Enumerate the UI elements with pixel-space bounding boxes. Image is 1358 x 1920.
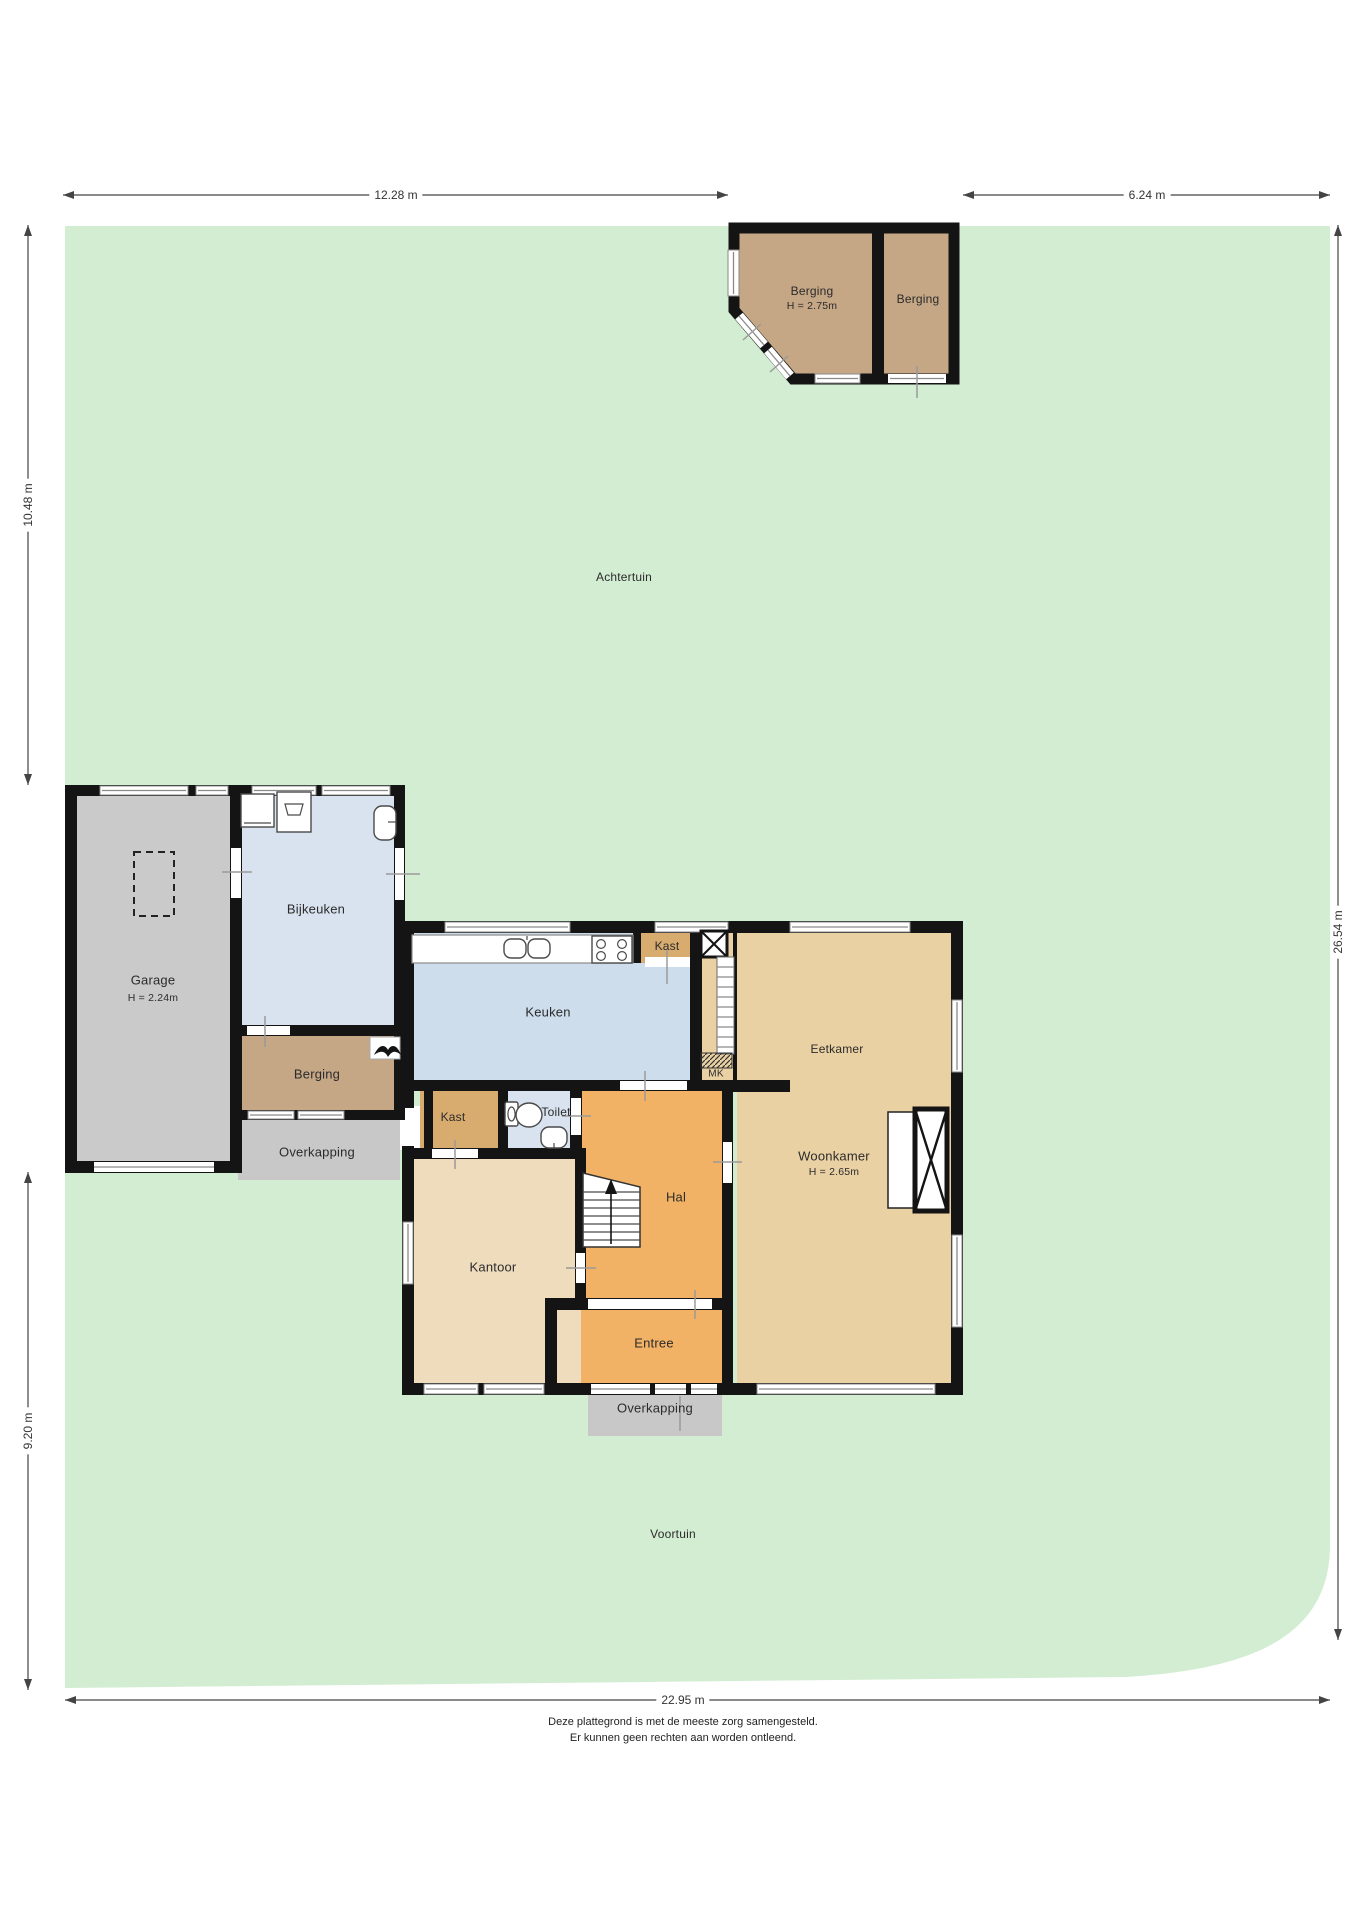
bird-icon: [370, 1037, 401, 1059]
floor-plan-drawing: [0, 0, 1358, 1920]
label-toilet: Toilet: [541, 1105, 570, 1119]
label-entree: Entree: [634, 1336, 674, 1351]
label-woonkamer: Woonkamer: [798, 1149, 870, 1164]
label-berging-shed-right: Berging: [897, 292, 940, 306]
label-hal: Hal: [666, 1190, 686, 1205]
label-keuken: Keuken: [525, 1005, 570, 1020]
meterkast-hatch: [701, 1053, 732, 1068]
dim-label-top-left: 12.28 m: [369, 188, 422, 202]
shaft-x-icon: [701, 931, 727, 957]
label-meterkast: MK: [708, 1069, 723, 1080]
shed-divider-wall: [872, 224, 884, 376]
label-woonkamer-height: H = 2.65m: [809, 1166, 860, 1178]
washer-icon: [241, 794, 274, 827]
label-kast-keuken: Kast: [655, 939, 680, 953]
floor-plan-canvas: 12.28 m 6.24 m 10.48 m 9.20 m 26.54 m 22…: [0, 0, 1358, 1920]
bijkeuken-sink-icon: [374, 806, 396, 840]
label-garage-height: H = 2.24m: [128, 992, 179, 1004]
label-overkapping-front: Overkapping: [617, 1401, 693, 1416]
toilet-bowl-icon: [516, 1103, 542, 1127]
label-voortuin: Voortuin: [650, 1527, 696, 1541]
kitchen-sink-icon: [504, 939, 526, 958]
dryer-icon: [277, 792, 311, 832]
disclaimer-line-1: Deze plattegrond is met de meeste zorg s…: [548, 1716, 818, 1728]
label-berging-shed-left-height: H = 2.75m: [787, 300, 838, 312]
dim-label-bottom: 22.95 m: [656, 1693, 709, 1707]
label-kantoor: Kantoor: [470, 1260, 517, 1275]
label-overkapping-side: Overkapping: [279, 1145, 355, 1160]
dim-label-right: 26.54 m: [1331, 905, 1345, 958]
label-kast-hal: Kast: [441, 1110, 466, 1124]
dim-label-left-upper: 10.48 m: [21, 478, 35, 531]
label-berging-shed-left: Berging: [791, 284, 834, 298]
fireplace: [888, 1109, 947, 1211]
label-eetkamer: Eetkamer: [811, 1042, 864, 1056]
label-garage: Garage: [131, 973, 176, 988]
dim-label-left-lower: 9.20 m: [21, 1408, 35, 1455]
label-berging-house: Berging: [294, 1067, 340, 1082]
label-achtertuin: Achtertuin: [596, 570, 652, 584]
label-bijkeuken: Bijkeuken: [287, 902, 345, 917]
disclaimer-line-2: Er kunnen geen rechten aan worden ontlee…: [570, 1732, 796, 1744]
dim-label-top-right: 6.24 m: [1124, 188, 1171, 202]
cupboard-shelves-icon: [717, 957, 734, 1054]
